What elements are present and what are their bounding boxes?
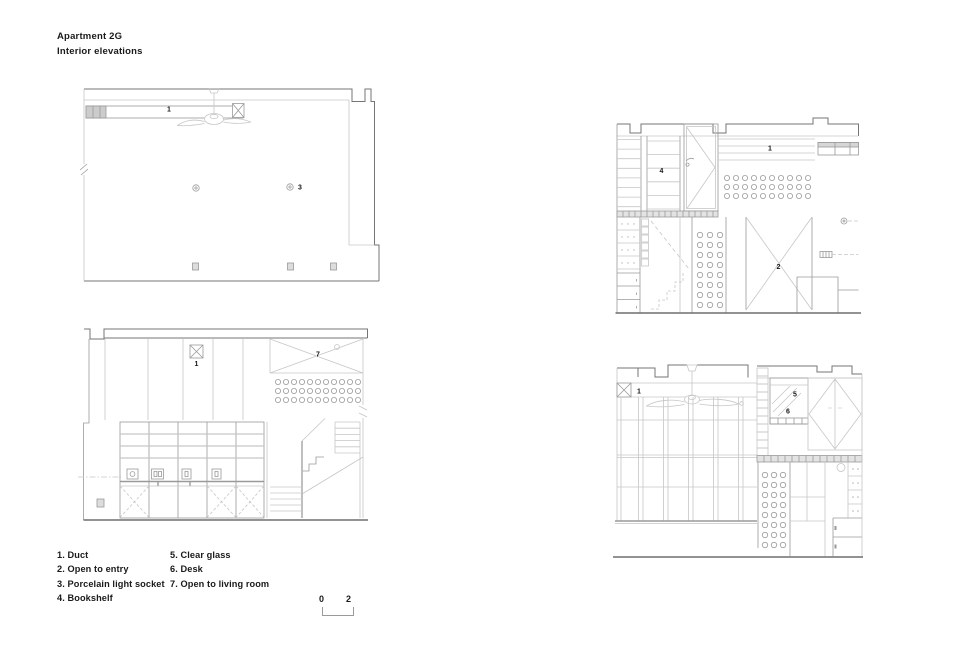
drawers bbox=[617, 273, 640, 309]
switch-box-icon bbox=[820, 252, 832, 258]
cabinet-door-swings bbox=[120, 486, 264, 518]
perforated-column-dots bbox=[762, 472, 785, 547]
bookshelf bbox=[120, 422, 264, 518]
door-panel bbox=[684, 124, 718, 211]
window-grid bbox=[617, 397, 757, 521]
parapet-outline bbox=[617, 118, 859, 136]
hatched-band bbox=[757, 456, 862, 463]
ceiling-fan-icon bbox=[647, 365, 744, 407]
side-cabinet bbox=[837, 462, 862, 518]
clear-glass-desk-panel bbox=[770, 378, 808, 424]
drawing-sheet: Apartment 2G Interior elevations 1. Duct… bbox=[0, 0, 964, 666]
wall-panel-joints bbox=[105, 339, 243, 420]
label-light-socket: 3 bbox=[298, 185, 302, 192]
label-duct: 1 bbox=[768, 146, 772, 153]
break-line-icon bbox=[80, 164, 88, 175]
bookshelf-shelves-left bbox=[617, 140, 641, 207]
outlet-box bbox=[97, 499, 104, 507]
perforated-wall-dots bbox=[724, 175, 810, 198]
drawers bbox=[833, 518, 862, 556]
porcelain-light-sockets bbox=[193, 184, 293, 191]
bookshelf-shelves-right bbox=[647, 141, 680, 209]
shelf-lines bbox=[120, 434, 264, 458]
label-open-to-living-room: 7 bbox=[316, 352, 320, 359]
desk-outline bbox=[797, 277, 859, 313]
hidden-stair bbox=[651, 273, 683, 309]
perforated-column-dots bbox=[697, 232, 722, 307]
elevation-bottom-left: 1 7 bbox=[78, 329, 368, 520]
label-desk: 6 bbox=[786, 409, 790, 416]
perforated-screen-dots bbox=[275, 379, 360, 402]
glazed-panel bbox=[790, 462, 825, 556]
elevation-bottom-right: 1 5 6 bbox=[613, 365, 863, 557]
label-duct: 1 bbox=[195, 361, 199, 368]
label-bookshelf: 4 bbox=[660, 168, 664, 175]
duct-box bbox=[190, 345, 203, 358]
duct-lines bbox=[718, 139, 815, 160]
label-open-to-entry: 2 bbox=[777, 264, 781, 271]
stair bbox=[267, 419, 363, 519]
duct-grille bbox=[818, 143, 859, 156]
ceiling-outline bbox=[84, 329, 368, 339]
label-duct: 1 bbox=[167, 107, 171, 114]
light-socket-icon bbox=[841, 218, 847, 224]
pivot-panel bbox=[808, 378, 862, 450]
elevation-top-left: 1 3 bbox=[80, 89, 379, 282]
stacked-boxes bbox=[642, 219, 649, 266]
label-duct: 1 bbox=[637, 389, 641, 396]
label-clear-glass: 5 bbox=[793, 392, 797, 399]
door-handle-icon bbox=[686, 158, 694, 166]
wall-outlets bbox=[193, 263, 337, 270]
block-column bbox=[757, 368, 768, 456]
parapet-outline bbox=[617, 365, 862, 378]
hatched-band bbox=[617, 211, 718, 217]
elevations-linework: 1 3 bbox=[0, 0, 964, 666]
elevation-top-right: 4 1 2 bbox=[616, 118, 862, 313]
duct-end-box bbox=[617, 383, 631, 397]
cabinet-texture-dots bbox=[621, 223, 634, 263]
